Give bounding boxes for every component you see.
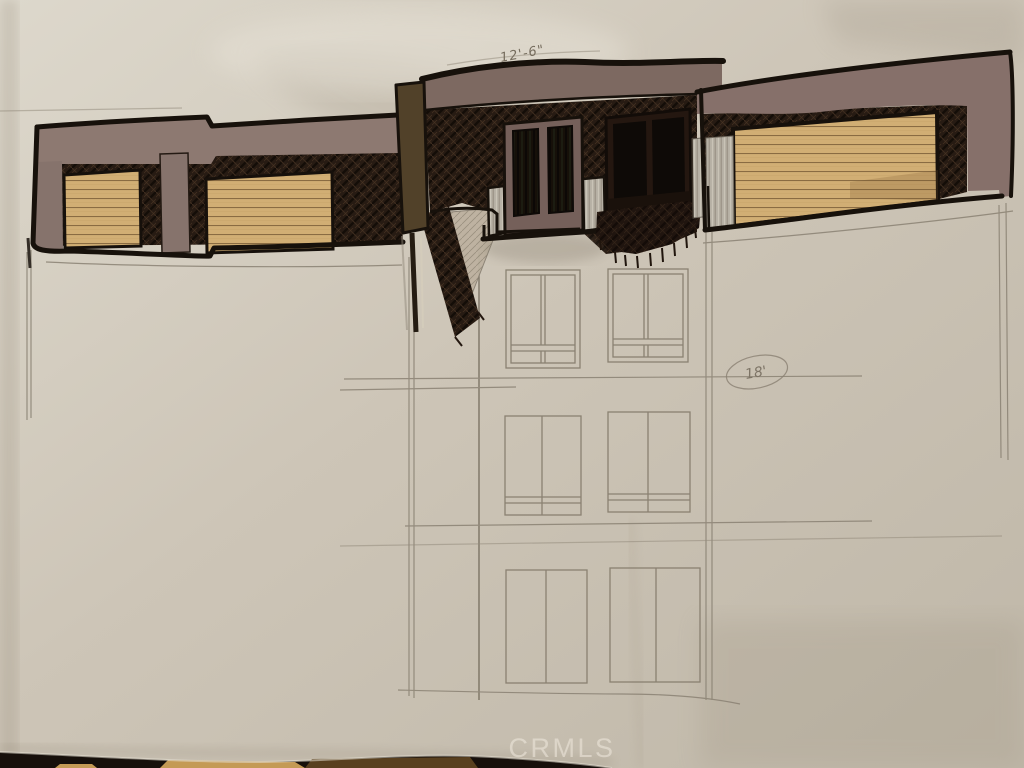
paper-vignette-bottomright: [700, 620, 1024, 768]
crmls-watermark: CRMLS: [508, 733, 615, 763]
ink-tick-far-left: [28, 238, 30, 268]
table-tan-object-small: [55, 764, 97, 768]
door-glass-right: [548, 126, 573, 213]
left-wing-window-2-tan-slats: [206, 172, 333, 253]
sketch-canvas: 12'-6" 18' CRMLS: [0, 0, 1024, 768]
window-pane-right: [652, 117, 685, 196]
door-glass-left: [513, 129, 539, 216]
center-right-window: [606, 109, 691, 213]
right-wing-silver-strip: [706, 136, 734, 229]
olive-pillar: [396, 82, 428, 233]
photo-architectural-sketch: 12'-6" 18' CRMLS: [0, 0, 1024, 768]
silver-strip-ink-hook: [708, 186, 709, 228]
window-pane-left: [613, 121, 647, 199]
left-wing-window-1-tan-slats: [64, 170, 141, 248]
left-wing: [32, 115, 403, 256]
left-wing-mauve-divider: [160, 153, 190, 253]
silver-strip-edge: [692, 139, 693, 218]
paper-shade-left-edge: [0, 0, 18, 768]
